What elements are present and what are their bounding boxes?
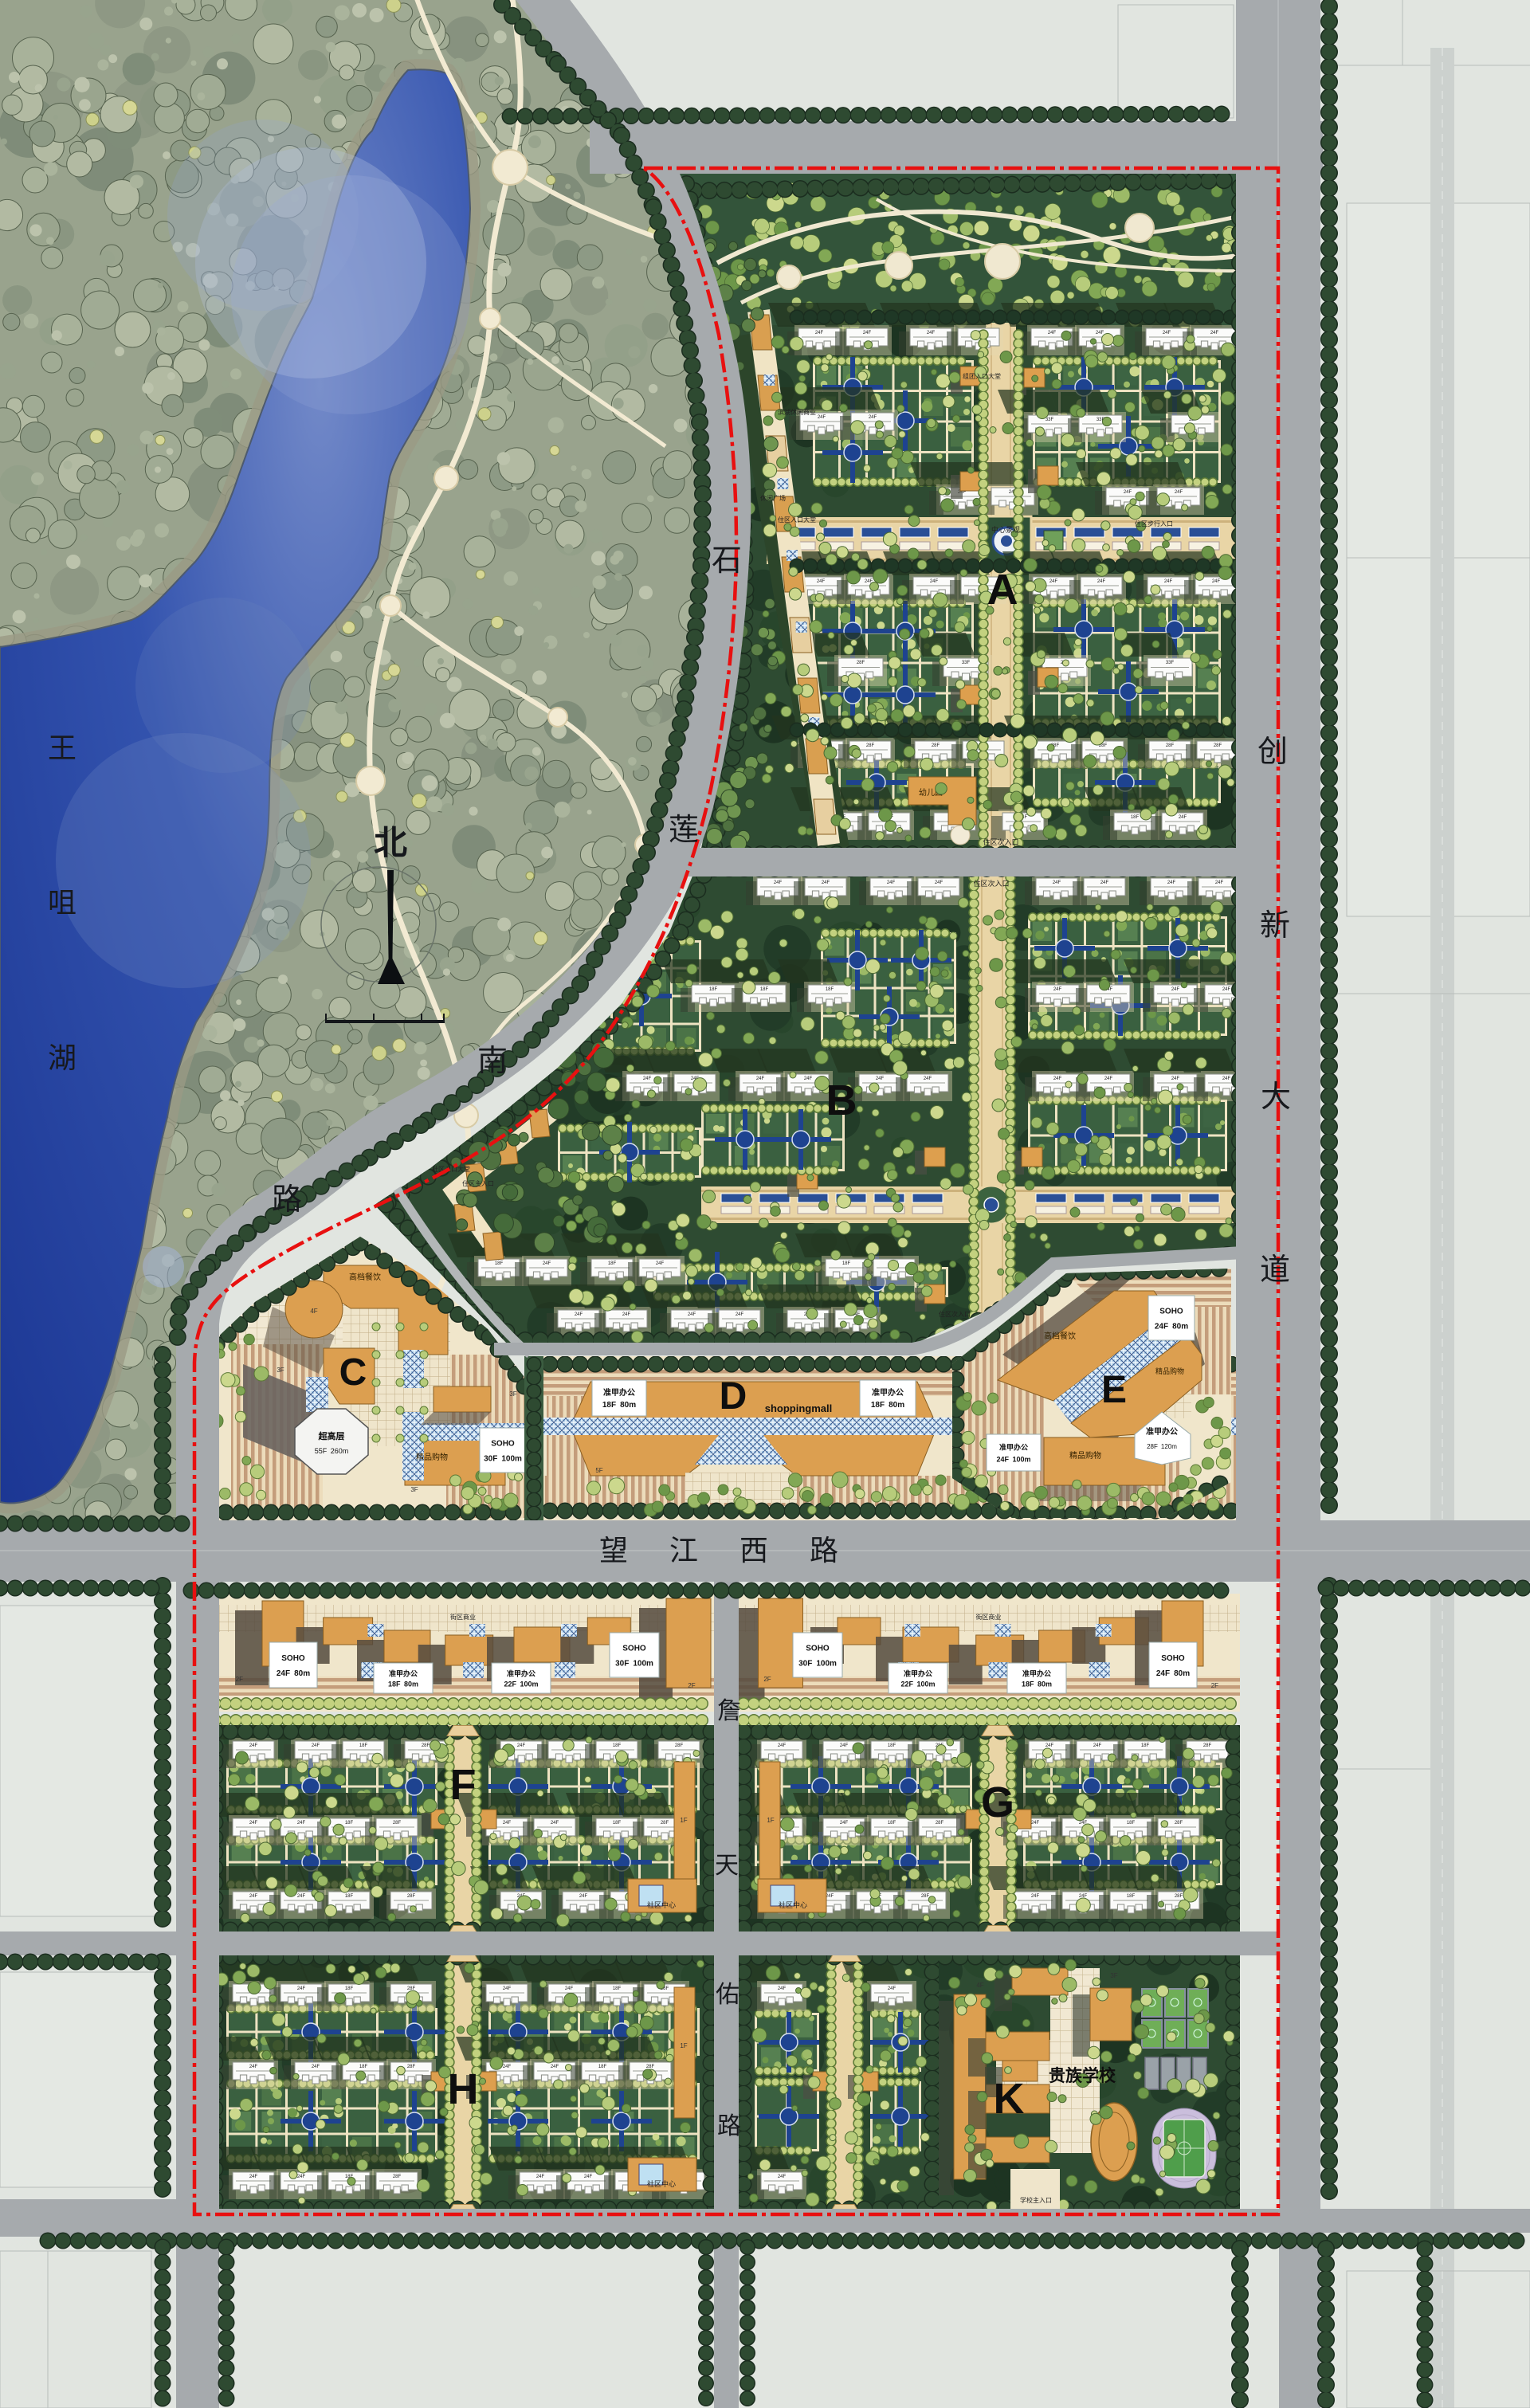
svg-text:3F: 3F (277, 1367, 284, 1374)
svg-text:18F: 18F (608, 1261, 617, 1266)
svg-text:24F: 24F (1215, 880, 1224, 885)
svg-text:住区步行入口: 住区步行入口 (1135, 520, 1173, 527)
svg-text:2F: 2F (236, 1676, 243, 1683)
svg-text:精品购物: 精品购物 (1069, 1450, 1101, 1461)
svg-text:24F: 24F (1045, 1743, 1054, 1748)
svg-text:24F: 24F (1222, 1077, 1231, 1081)
svg-text:28F: 28F (857, 661, 865, 665)
svg-text:18F: 18F (345, 1821, 354, 1826)
svg-text:22F 100m: 22F 100m (504, 1680, 538, 1688)
svg-text:24F: 24F (503, 1821, 512, 1826)
svg-text:精品购物: 精品购物 (416, 1452, 448, 1462)
svg-text:24F: 24F (1053, 1077, 1062, 1081)
svg-text:24F: 24F (1163, 331, 1171, 335)
svg-text:社区入口大堂: 社区入口大堂 (432, 1165, 470, 1173)
svg-text:28F: 28F (675, 1743, 684, 1748)
svg-text:24F: 24F (1222, 987, 1231, 992)
svg-text:28F: 28F (1214, 743, 1222, 748)
svg-text:24F: 24F (756, 1077, 765, 1081)
svg-text:28F: 28F (866, 743, 875, 748)
svg-text:24F: 24F (774, 880, 783, 885)
svg-text:24F: 24F (815, 331, 824, 335)
svg-text:24F: 24F (249, 1894, 258, 1899)
svg-text:2F: 2F (688, 1682, 695, 1689)
svg-text:18F: 18F (613, 1743, 622, 1748)
svg-text:24F: 24F (1164, 579, 1173, 584)
svg-text:E: E (1101, 1369, 1127, 1411)
svg-text:18F: 18F (345, 1894, 354, 1899)
svg-text:24F: 24F (551, 1821, 559, 1826)
svg-text:住区次入口: 住区次入口 (939, 1310, 971, 1318)
svg-text:18F: 18F (495, 1261, 504, 1266)
svg-text:18F: 18F (709, 987, 718, 992)
svg-text:28F: 28F (407, 1894, 416, 1899)
svg-text:24F: 24F (924, 1077, 932, 1081)
svg-text:18F 80m: 18F 80m (871, 1401, 904, 1410)
svg-text:北: 北 (374, 824, 407, 861)
svg-text:24F: 24F (1171, 1077, 1180, 1081)
svg-text:24F: 24F (643, 1077, 652, 1081)
svg-text:24F: 24F (1049, 579, 1058, 584)
svg-text:28F: 28F (393, 1821, 402, 1826)
svg-text:18F: 18F (613, 1821, 622, 1826)
svg-text:24F 80m: 24F 80m (1156, 1669, 1190, 1678)
svg-text:B: B (826, 1077, 857, 1124)
svg-text:5F: 5F (595, 1467, 602, 1474)
svg-text:住区次入口: 住区次入口 (973, 879, 1009, 888)
svg-text:28F: 28F (1166, 743, 1175, 748)
svg-text:24F: 24F (818, 415, 826, 420)
svg-text:30F 100m: 30F 100m (484, 1454, 522, 1463)
svg-text:24F: 24F (579, 1894, 588, 1899)
svg-text:24F: 24F (1048, 331, 1057, 335)
svg-text:33F: 33F (962, 661, 971, 665)
svg-text:24F: 24F (778, 1743, 787, 1748)
svg-text:SOHO: SOHO (622, 1645, 646, 1653)
svg-text:22F 100m: 22F 100m (900, 1680, 935, 1688)
svg-text:24F 100m: 24F 100m (996, 1456, 1030, 1464)
svg-text:24F: 24F (840, 1743, 849, 1748)
svg-text:24F: 24F (1210, 331, 1219, 335)
svg-text:准甲办公: 准甲办公 (507, 1669, 535, 1678)
svg-text:24F: 24F (1096, 331, 1104, 335)
svg-text:24F: 24F (1053, 880, 1061, 885)
svg-text:24F: 24F (887, 880, 896, 885)
svg-text:精品购物: 精品购物 (1155, 1367, 1184, 1375)
svg-text:街区商业: 街区商业 (450, 1613, 476, 1621)
svg-text:街区商业: 街区商业 (976, 1613, 1002, 1621)
svg-text:24F: 24F (1167, 880, 1176, 885)
svg-text:准甲办公: 准甲办公 (872, 1387, 904, 1398)
svg-text:高档餐饮: 高档餐饮 (349, 1272, 381, 1282)
svg-text:24F: 24F (1053, 987, 1062, 992)
svg-text:33F: 33F (1166, 661, 1175, 665)
svg-text:24F: 24F (1175, 490, 1183, 495)
svg-text:18F: 18F (1131, 815, 1140, 820)
svg-text:24F: 24F (1171, 987, 1180, 992)
svg-text:18F: 18F (760, 987, 769, 992)
svg-text:24F: 24F (935, 880, 943, 885)
svg-text:24F: 24F (927, 331, 936, 335)
svg-text:18F: 18F (888, 1743, 896, 1748)
svg-text:24F: 24F (1104, 1077, 1113, 1081)
svg-text:2F: 2F (1211, 1682, 1218, 1689)
svg-text:组团入口大堂: 组团入口大堂 (963, 372, 1001, 380)
svg-text:4F: 4F (310, 1308, 317, 1315)
svg-text:24F: 24F (249, 1821, 258, 1826)
svg-text:24F: 24F (1124, 490, 1132, 495)
svg-text:24F 80m: 24F 80m (277, 1669, 310, 1678)
svg-text:33F: 33F (1045, 418, 1054, 422)
svg-text:30F 100m: 30F 100m (798, 1659, 837, 1668)
svg-text:准甲办公: 准甲办公 (603, 1387, 635, 1398)
svg-text:24F: 24F (736, 1312, 744, 1317)
svg-text:1F: 1F (680, 1817, 687, 1824)
svg-text:28F: 28F (932, 743, 940, 748)
svg-text:24F: 24F (876, 1077, 885, 1081)
svg-text:滨湖休闲商业: 滨湖休闲商业 (778, 408, 816, 416)
svg-text:高档餐饮: 高档餐饮 (1044, 1331, 1076, 1341)
svg-text:24F: 24F (517, 1743, 526, 1748)
svg-text:18F: 18F (359, 1743, 368, 1748)
svg-text:D: D (720, 1375, 747, 1418)
svg-text:SOHO: SOHO (806, 1645, 830, 1653)
svg-text:住区入口大堂: 住区入口大堂 (778, 516, 816, 524)
svg-text:住区主入口: 住区主入口 (462, 1179, 494, 1187)
svg-text:中心景观: 中心景观 (991, 525, 1020, 534)
svg-text:3F: 3F (509, 1390, 516, 1398)
svg-text:28F: 28F (422, 1743, 430, 1748)
svg-text:休闲广场: 休闲广场 (760, 494, 786, 502)
svg-text:超高层: 超高层 (318, 1430, 345, 1441)
svg-text:准甲办公: 准甲办公 (904, 1669, 932, 1678)
svg-text:24F: 24F (822, 880, 830, 885)
svg-text:24F: 24F (1179, 815, 1187, 820)
svg-text:shoppingmall: shoppingmall (765, 1402, 833, 1414)
svg-text:24F 80m: 24F 80m (1155, 1322, 1188, 1331)
svg-text:18F 80m: 18F 80m (1022, 1680, 1052, 1688)
svg-text:24F: 24F (1100, 880, 1109, 885)
svg-text:C: C (339, 1351, 367, 1394)
svg-text:24F: 24F (930, 579, 939, 584)
svg-text:24F: 24F (688, 1312, 696, 1317)
svg-text:24F: 24F (1097, 579, 1106, 584)
svg-text:24F: 24F (575, 1312, 583, 1317)
svg-text:24F: 24F (249, 1743, 258, 1748)
svg-text:30F 100m: 30F 100m (615, 1659, 653, 1668)
svg-text:24F: 24F (1212, 579, 1221, 584)
svg-text:2F: 2F (763, 1676, 771, 1683)
svg-text:24F: 24F (863, 331, 872, 335)
svg-text:24F: 24F (817, 579, 826, 584)
svg-text:18F: 18F (826, 987, 834, 992)
svg-text:准甲办公: 准甲办公 (999, 1442, 1028, 1451)
svg-text:住区次入口: 住区次入口 (983, 837, 1018, 846)
svg-text:准甲办公: 准甲办公 (1146, 1426, 1178, 1437)
svg-text:F: F (450, 1761, 477, 1809)
svg-text:18F: 18F (842, 1261, 851, 1266)
svg-text:A: A (987, 566, 1018, 614)
svg-text:24F: 24F (804, 1077, 813, 1081)
svg-text:社区中心: 社区中心 (647, 1900, 676, 1909)
svg-text:SOHO: SOHO (281, 1654, 305, 1663)
svg-text:24F: 24F (622, 1312, 631, 1317)
svg-text:3F: 3F (410, 1486, 418, 1493)
svg-text:55F 260m: 55F 260m (315, 1447, 349, 1455)
svg-text:24F: 24F (312, 1743, 320, 1748)
svg-text:SOHO: SOHO (1159, 1308, 1183, 1316)
svg-text:24F: 24F (656, 1261, 665, 1266)
svg-text:28F: 28F (661, 1821, 669, 1826)
svg-text:24F: 24F (869, 415, 877, 420)
svg-text:18F 80m: 18F 80m (602, 1401, 636, 1410)
svg-text:24F: 24F (297, 1821, 306, 1826)
svg-text:24F: 24F (543, 1261, 551, 1266)
svg-text:准甲办公: 准甲办公 (389, 1669, 418, 1678)
svg-text:28F 120m: 28F 120m (1147, 1443, 1177, 1450)
svg-text:SOHO: SOHO (1161, 1654, 1185, 1663)
svg-text:准甲办公: 准甲办公 (1022, 1669, 1051, 1678)
svg-text:18F 80m: 18F 80m (388, 1680, 418, 1688)
svg-text:24F: 24F (297, 1894, 306, 1899)
svg-text:SOHO: SOHO (491, 1440, 515, 1449)
